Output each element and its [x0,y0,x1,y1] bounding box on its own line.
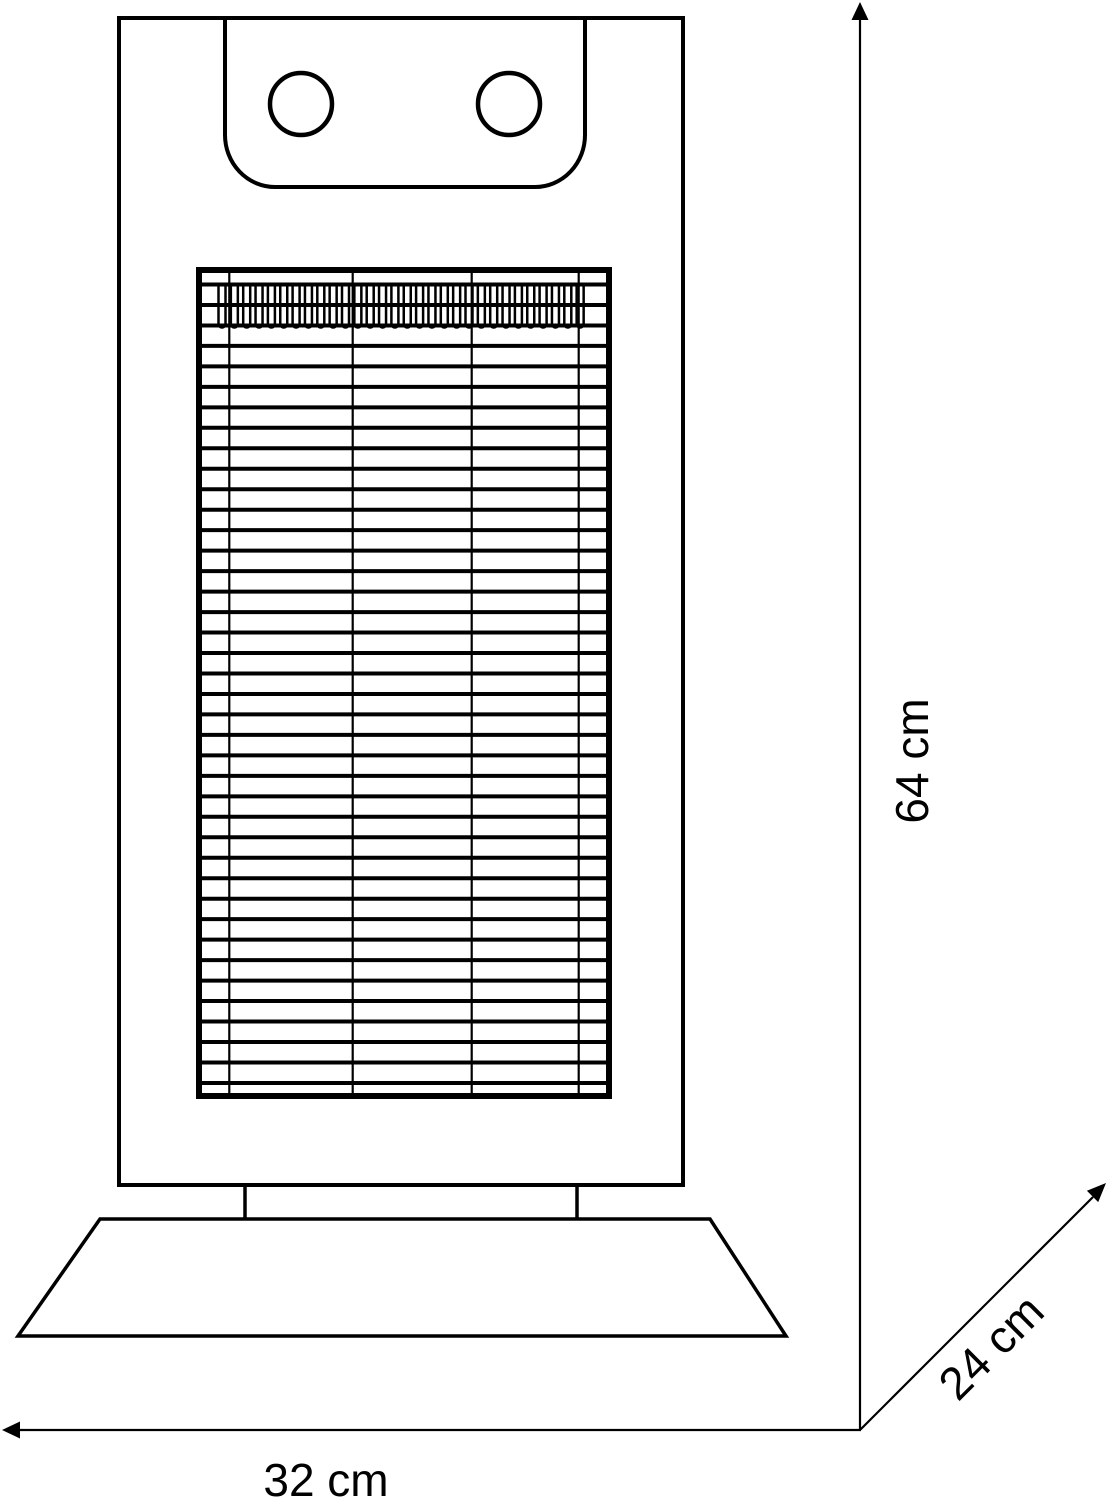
heating-coil-loop [564,287,571,328]
heating-coil-loop [231,287,238,328]
heating-grille [199,270,609,1096]
heating-coil-loop [416,287,423,328]
heating-coil-loop [515,287,522,328]
heater-dimension-diagram: 64 cm 24 cm 32 cm [0,0,1112,1500]
width-dimension-label: 32 cm [263,1454,388,1500]
heating-coil-loop [391,287,398,328]
depth-dimension: 24 cm [861,1183,1107,1430]
heating-coil-loop [268,287,275,328]
heating-coil-loop [379,287,386,328]
grille-vertical-dividers [229,270,578,1096]
control-panel-outline [225,16,585,187]
heating-coil-loop [305,287,312,328]
heating-coil-loop [466,287,473,328]
heater-outline-drawing [18,16,786,1336]
grille-horizontal-slats [199,285,609,1083]
heating-coil-loop [428,287,435,328]
base-outline [18,1219,786,1336]
control-knob-left [270,73,332,135]
heating-coil-loop [293,287,300,328]
heating-coil-loop [577,287,584,328]
grille-frame [199,270,609,1096]
height-arrow-up-icon [852,2,869,20]
heating-coil-loop [280,287,287,328]
heating-coil-loop [342,287,349,328]
heating-coil-loop [552,287,559,328]
heating-coil-loop [441,287,448,328]
heating-coil-loop [256,287,263,328]
diagram-canvas: 64 cm 24 cm 32 cm [0,0,1112,1500]
heating-coil-loop [478,287,485,328]
depth-dimension-label: 24 cm [928,1284,1053,1409]
heating-coil-loop [354,287,361,328]
height-dimension: 64 cm [852,2,939,1430]
width-arrow-left-icon [2,1422,20,1439]
height-dimension-label: 64 cm [886,698,938,823]
heating-coil-loop [453,287,460,328]
width-dimension: 32 cm [2,1422,861,1500]
control-knob-right [478,73,540,135]
dimension-annotations: 64 cm 24 cm 32 cm [2,2,1106,1500]
heating-coil-loop [503,287,510,328]
heating-coil-loop [330,287,337,328]
body-outline [119,18,683,1185]
heating-coil-loop [404,287,411,328]
heating-coil-loop [243,287,250,328]
heating-coils-group [219,287,584,328]
heating-coil-loop [367,287,374,328]
heating-coil-loop [219,287,226,328]
heating-coil-loop [490,287,497,328]
heating-coil-loop [317,287,324,328]
heating-coil-loop [527,287,534,328]
heating-coil-loop [540,287,547,328]
